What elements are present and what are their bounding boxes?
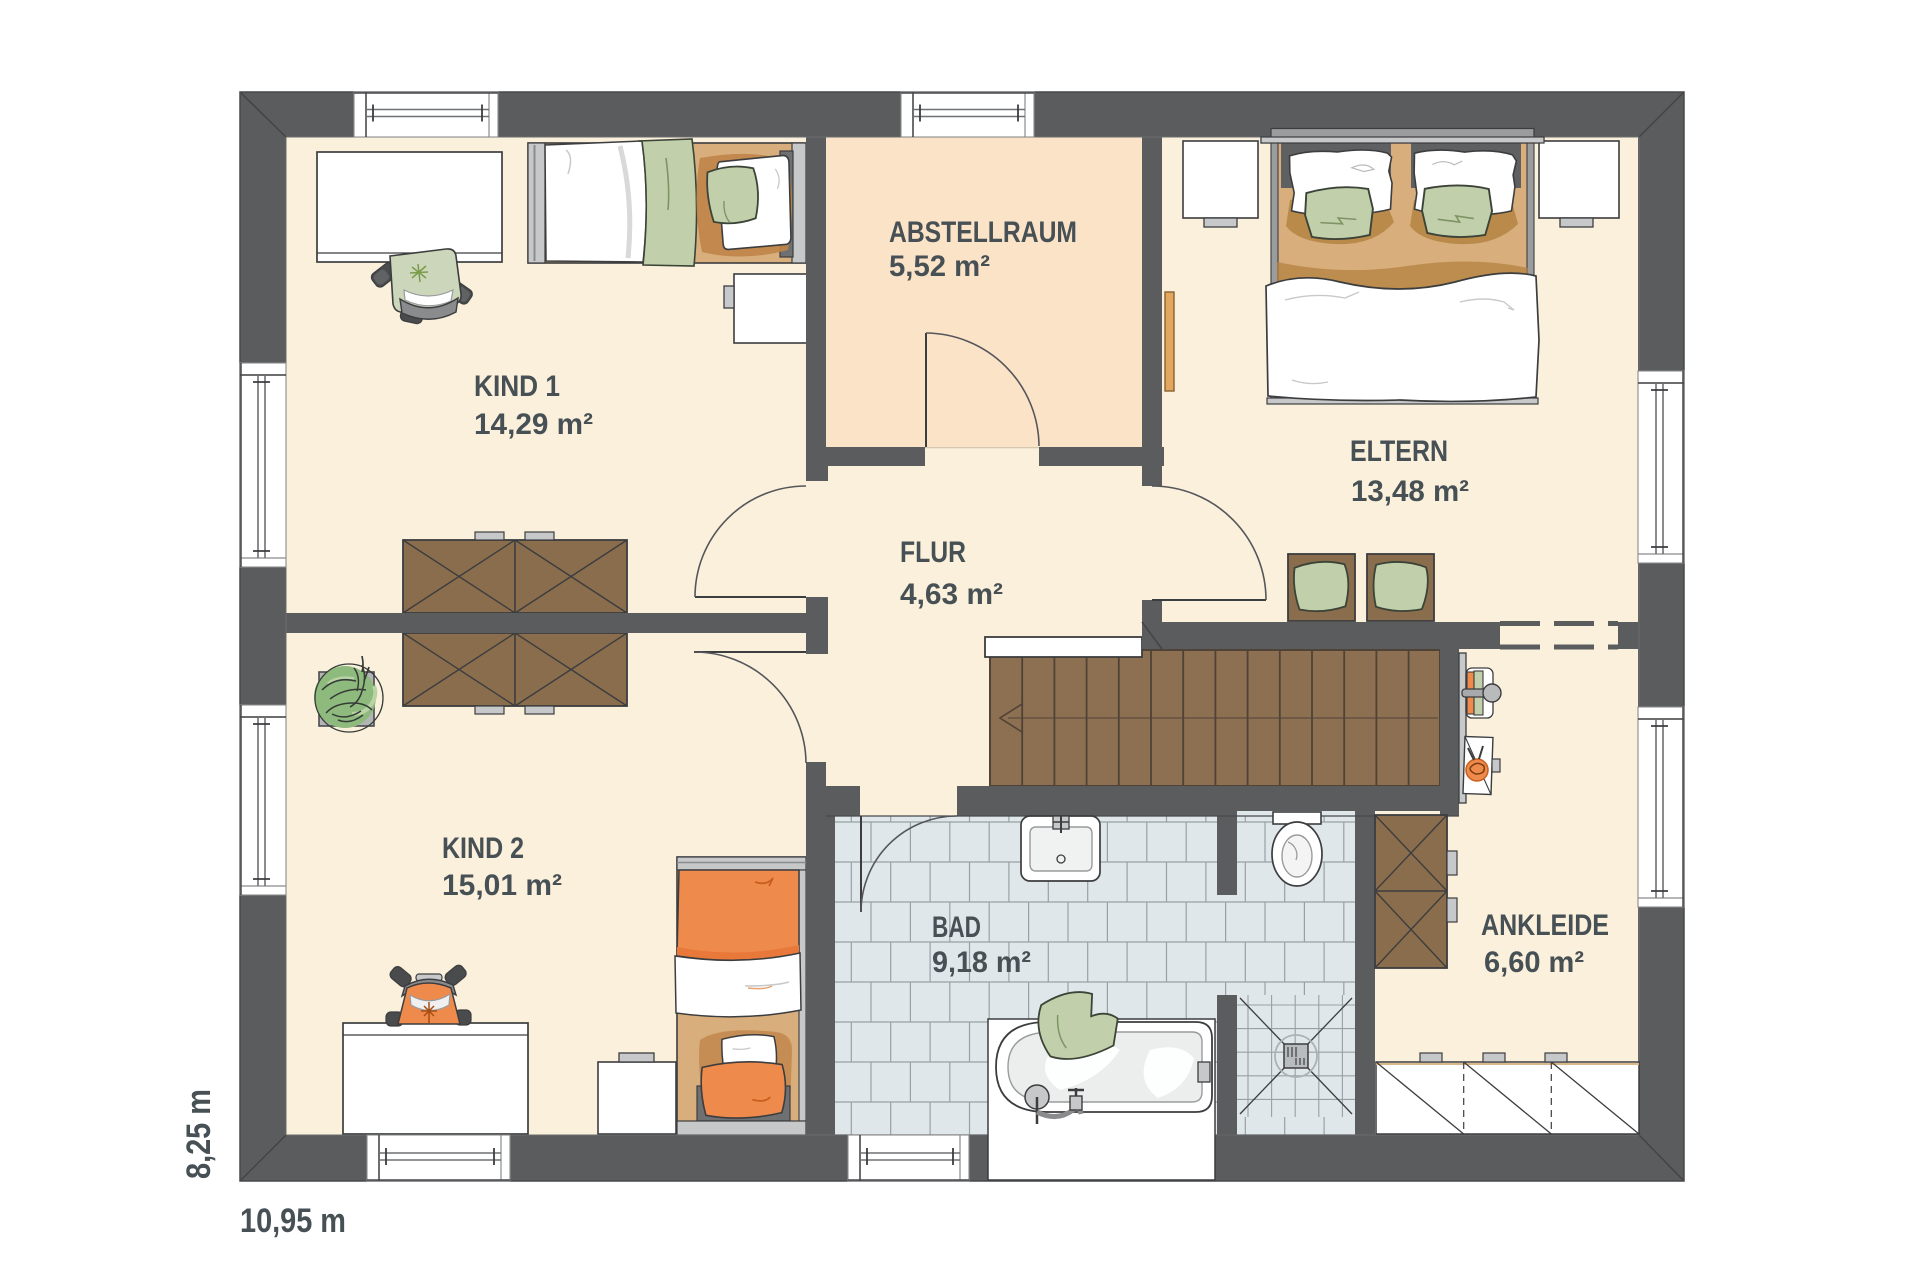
svg-text:14,29 m²: 14,29 m²	[474, 408, 593, 441]
svg-text:8,25 m: 8,25 m	[180, 1089, 218, 1179]
svg-text:5,52 m²: 5,52 m²	[889, 250, 990, 283]
svg-text:15,01 m²: 15,01 m²	[442, 869, 562, 902]
svg-text:BAD: BAD	[932, 911, 981, 944]
svg-text:13,48 m²: 13,48 m²	[1351, 475, 1469, 508]
svg-text:ANKLEIDE: ANKLEIDE	[1481, 909, 1609, 942]
svg-text:9,18 m²: 9,18 m²	[932, 946, 1031, 979]
svg-text:KIND 1: KIND 1	[474, 370, 560, 403]
svg-text:4,63 m²: 4,63 m²	[900, 578, 1003, 611]
svg-text:6,60 m²: 6,60 m²	[1484, 946, 1584, 979]
svg-text:10,95 m: 10,95 m	[240, 1202, 346, 1240]
svg-text:KIND 2: KIND 2	[442, 832, 524, 865]
svg-text:ELTERN: ELTERN	[1350, 435, 1448, 468]
svg-text:ABSTELLRAUM: ABSTELLRAUM	[889, 216, 1077, 249]
svg-text:FLUR: FLUR	[900, 536, 966, 569]
